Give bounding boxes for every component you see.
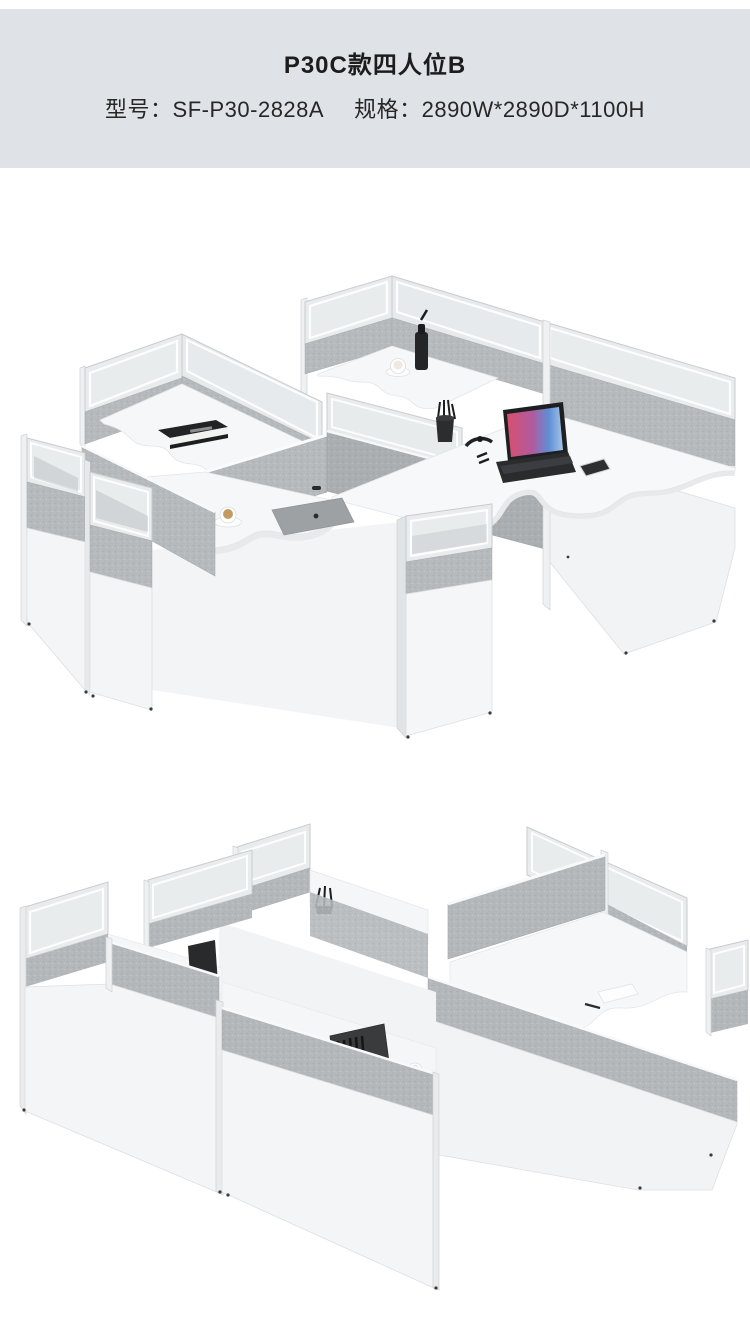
frame-post — [144, 880, 149, 952]
spec-group: 规格：2890W*2890D*1100H — [354, 92, 645, 124]
partition-glass — [710, 940, 748, 999]
frame-post — [85, 460, 90, 697]
panel-white — [90, 572, 152, 710]
render-back-view — [0, 822, 750, 1292]
laptop — [496, 402, 576, 483]
panel-white — [25, 984, 219, 1193]
spec-value: 2890W*2890D*1100H — [422, 97, 645, 122]
pen-holder — [436, 400, 455, 442]
model-group: 型号：SF-P30-2828A — [105, 92, 324, 124]
panel-white — [406, 580, 492, 736]
frame-post — [80, 366, 85, 448]
center-front-panel — [397, 504, 492, 738]
cable-port — [312, 486, 321, 490]
panel-white — [27, 528, 85, 690]
back-view-illustration — [0, 822, 750, 1292]
frame-post — [706, 948, 711, 1036]
panel-side — [397, 516, 406, 738]
product-subtitle: 型号：SF-P30-2828A 规格：2890W*2890D*1100H — [105, 92, 645, 124]
spec-label: 规格： — [354, 97, 422, 122]
model-label: 型号： — [105, 97, 173, 122]
product-header: P30C款四人位B 型号：SF-P30-2828A 规格：2890W*2890D… — [0, 9, 750, 168]
render-front-view — [0, 250, 750, 806]
frame-post — [106, 937, 112, 992]
front-view-illustration — [0, 250, 750, 806]
frame-post — [433, 1072, 439, 1290]
right-end-return-panel — [706, 940, 748, 1036]
model-value: SF-P30-2828A — [173, 97, 325, 122]
product-title: P30C款四人位B — [284, 53, 466, 79]
frame-post — [21, 434, 27, 626]
product-detail-page: P30C款四人位B 型号：SF-P30-2828A 规格：2890W*2890D… — [0, 9, 750, 1327]
